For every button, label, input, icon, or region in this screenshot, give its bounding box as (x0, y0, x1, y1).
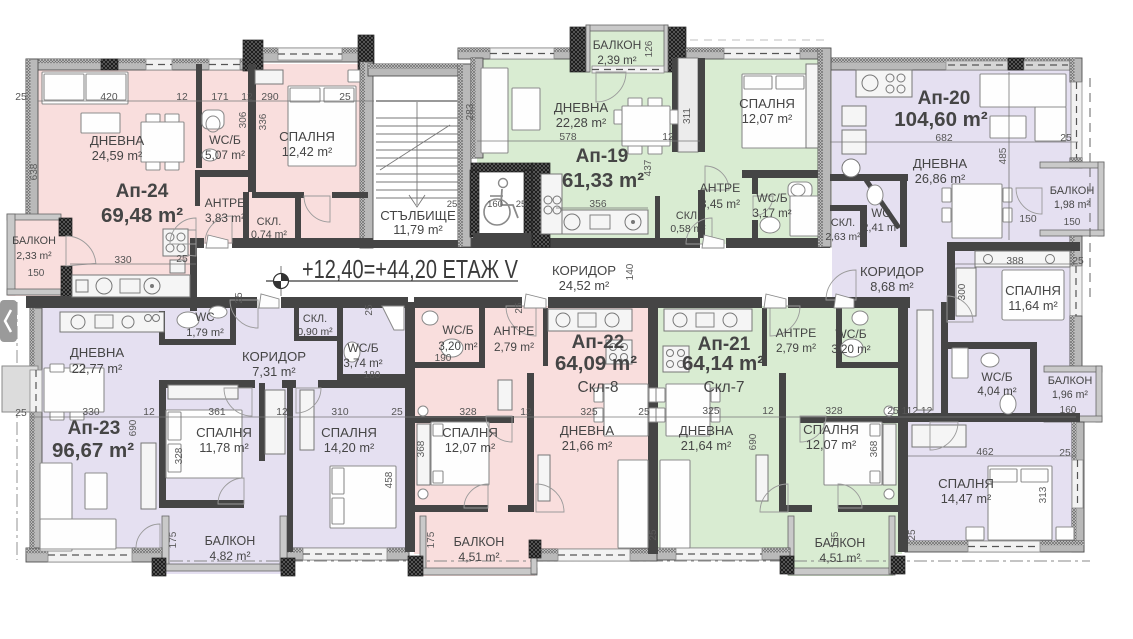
svg-text:2,33 m²: 2,33 m² (16, 251, 52, 262)
svg-text:175: 175 (426, 531, 437, 548)
svg-text:БАЛКОН: БАЛКОН (1050, 185, 1095, 197)
svg-text:12,07 m²: 12,07 m² (445, 440, 496, 455)
svg-text:11,79 m²: 11,79 m² (393, 222, 443, 237)
svg-text:336: 336 (258, 113, 269, 130)
svg-text:25: 25 (514, 302, 525, 314)
svg-text:25: 25 (176, 254, 188, 265)
svg-text:458: 458 (384, 471, 395, 488)
svg-text:4,51 m²: 4,51 m² (459, 550, 500, 564)
svg-text:325: 325 (580, 407, 597, 418)
svg-text:160: 160 (487, 199, 503, 210)
svg-text:25: 25 (907, 529, 918, 541)
svg-text:21,66 m²: 21,66 m² (562, 438, 613, 453)
svg-text:ДНЕВНА: ДНЕВНА (90, 133, 145, 148)
svg-text:2,79 m²: 2,79 m² (776, 341, 816, 355)
svg-text:БАЛКОН: БАЛКОН (593, 38, 642, 52)
svg-text:0,58 m²: 0,58 m² (670, 224, 706, 235)
svg-text:25: 25 (1072, 256, 1084, 267)
svg-text:3,83 m²: 3,83 m² (205, 211, 245, 225)
svg-text:2,79 m²: 2,79 m² (494, 340, 534, 354)
svg-text:690: 690 (748, 433, 759, 450)
svg-text:Скл-8: Скл-8 (578, 379, 619, 396)
svg-text:2,41 m²: 2,41 m² (862, 222, 900, 234)
svg-text:361: 361 (208, 407, 225, 418)
svg-text:Ап-20: Ап-20 (918, 88, 971, 109)
svg-text:3,45 m²: 3,45 m² (700, 197, 740, 211)
svg-text:СПАЛНЯ: СПАЛНЯ (803, 422, 859, 437)
svg-text:СПАЛНЯ: СПАЛНЯ (279, 129, 335, 144)
svg-text:СКЛ.: СКЛ. (257, 216, 282, 228)
svg-text:WC/Б: WC/Б (347, 341, 378, 355)
svg-text:Ап-19: Ап-19 (576, 146, 629, 167)
svg-text:WC/Б: WC/Б (981, 370, 1012, 384)
svg-text:КОРИДОР: КОРИДОР (552, 263, 616, 278)
svg-text:СПАЛНЯ: СПАЛНЯ (321, 425, 377, 440)
svg-text:64,14 m²: 64,14 m² (682, 352, 764, 375)
svg-text:ДНЕВНА: ДНЕВНА (913, 156, 968, 171)
svg-text:12,07 m²: 12,07 m² (806, 437, 857, 452)
svg-text:25: 25 (638, 407, 650, 418)
svg-text:306: 306 (238, 111, 249, 128)
svg-text:СПАЛНЯ: СПАЛНЯ (739, 96, 795, 111)
svg-text:25: 25 (447, 199, 458, 210)
svg-text:150: 150 (28, 268, 45, 279)
svg-text:4,82 m²: 4,82 m² (210, 549, 251, 563)
svg-text:25: 25 (364, 304, 375, 316)
svg-text:150: 150 (1064, 217, 1081, 228)
svg-text:69,48 m²: 69,48 m² (101, 204, 183, 227)
svg-text:АНТРЕ: АНТРЕ (700, 181, 741, 195)
svg-text:3,17 m²: 3,17 m² (752, 207, 791, 220)
svg-text:61,33 m²: 61,33 m² (562, 169, 644, 192)
svg-text:64,09 m²: 64,09 m² (555, 352, 637, 375)
svg-text:2,39 m²: 2,39 m² (597, 54, 636, 67)
svg-text:WC/Б: WC/Б (442, 323, 473, 337)
svg-text:1,98 m²: 1,98 m² (1054, 199, 1090, 211)
svg-text:690: 690 (128, 419, 139, 436)
svg-text:ДНЕВНА: ДНЕВНА (70, 345, 125, 360)
svg-text:БАЛКОН: БАЛКОН (205, 534, 256, 548)
svg-text:325: 325 (702, 406, 719, 417)
svg-text:160: 160 (1060, 405, 1077, 416)
svg-text:180: 180 (364, 370, 381, 381)
svg-text:ДНЕВНА: ДНЕВНА (554, 100, 609, 115)
svg-text:ДНЕВНА: ДНЕВНА (679, 423, 734, 438)
svg-text:330: 330 (82, 407, 99, 418)
svg-text:12,42 m²: 12,42 m² (282, 144, 333, 159)
svg-text:25: 25 (15, 408, 27, 419)
svg-text:140: 140 (625, 263, 636, 280)
svg-text:175: 175 (830, 531, 841, 548)
svg-text:12,07 m²: 12,07 m² (742, 111, 793, 126)
svg-text:12: 12 (520, 407, 532, 418)
svg-text:СКЛ.: СКЛ. (303, 313, 327, 325)
svg-text:+12,40=+44,20 ЕТАЖ V: +12,40=+44,20 ЕТАЖ V (302, 254, 518, 284)
svg-text:22,77 m²: 22,77 m² (72, 361, 123, 376)
svg-text:КОРИДОР: КОРИДОР (242, 349, 306, 364)
svg-text:СПАЛНЯ: СПАЛНЯ (442, 425, 498, 440)
svg-text:4,51 m²: 4,51 m² (820, 551, 861, 565)
svg-text:388: 388 (1006, 256, 1023, 267)
svg-text:8,68 m²: 8,68 m² (870, 279, 914, 294)
svg-text:14,47 m²: 14,47 m² (941, 491, 992, 506)
svg-text:WC/Б: WC/Б (835, 327, 866, 341)
svg-text:190: 190 (435, 353, 452, 364)
svg-text:313: 313 (1038, 486, 1049, 503)
svg-text:1,96 m²: 1,96 m² (1052, 389, 1088, 401)
svg-text:96,67 m²: 96,67 m² (52, 439, 134, 462)
svg-text:328: 328 (459, 407, 476, 418)
svg-text:24,59 m²: 24,59 m² (92, 148, 143, 163)
svg-text:АНТРЕ: АНТРЕ (776, 326, 817, 340)
svg-text:АНТРЕ: АНТРЕ (205, 196, 246, 210)
svg-text:0,90 m²: 0,90 m² (297, 327, 333, 338)
svg-text:БАЛКОН: БАЛКОН (12, 235, 56, 247)
svg-text:22,28 m²: 22,28 m² (556, 115, 607, 130)
svg-text:БАЛКОН: БАЛКОН (454, 535, 505, 549)
svg-text:Скл-7: Скл-7 (704, 379, 745, 396)
svg-text:126: 126 (644, 40, 655, 57)
svg-text:12: 12 (762, 406, 774, 417)
svg-text:4,04 m²: 4,04 m² (977, 385, 1016, 398)
svg-text:25: 25 (648, 529, 659, 541)
svg-text:21,64 m²: 21,64 m² (681, 438, 732, 453)
svg-text:368: 368 (869, 440, 880, 457)
svg-text:11,78 m²: 11,78 m² (199, 440, 249, 455)
svg-text:СКЛ.: СКЛ. (831, 217, 855, 229)
svg-text:Ап-24: Ап-24 (116, 181, 169, 202)
svg-text:Ап-22: Ап-22 (572, 332, 625, 353)
svg-text:26,86 m²: 26,86 m² (915, 171, 966, 186)
svg-text:25: 25 (15, 92, 27, 103)
svg-text:150: 150 (1019, 214, 1036, 225)
svg-text:25: 25 (391, 407, 403, 418)
svg-text:25: 25 (234, 292, 245, 304)
svg-text:WC/Б: WC/Б (209, 133, 241, 147)
svg-text:АНТРЕ: АНТРЕ (494, 324, 535, 338)
svg-text:25: 25 (887, 406, 899, 417)
svg-text:25: 25 (1059, 448, 1071, 459)
svg-text:638: 638 (29, 163, 40, 180)
svg-text:328: 328 (174, 447, 185, 464)
svg-text:1,79 m²: 1,79 m² (186, 327, 224, 339)
svg-text:Ап-23: Ап-23 (68, 418, 121, 439)
svg-text:311: 311 (682, 108, 693, 124)
svg-text:БАЛКОН: БАЛКОН (1048, 375, 1093, 387)
svg-text:5,07 m²: 5,07 m² (205, 148, 245, 162)
svg-text:0,74 m²: 0,74 m² (251, 229, 287, 241)
svg-text:3,74 m²: 3,74 m² (343, 357, 382, 370)
svg-text:300: 300 (957, 283, 968, 300)
svg-text:3,20 m²: 3,20 m² (831, 343, 870, 356)
svg-text:СПАЛНЯ: СПАЛНЯ (1005, 283, 1061, 298)
svg-text:ДНЕВНА: ДНЕВНА (560, 423, 615, 438)
svg-text:25: 25 (516, 199, 527, 210)
svg-text:WC/Б: WC/Б (756, 191, 787, 205)
svg-text:310: 310 (331, 407, 348, 418)
svg-text:24,52 m²: 24,52 m² (559, 278, 610, 293)
svg-text:СКЛ.: СКЛ. (676, 210, 700, 222)
svg-text:328: 328 (825, 406, 842, 417)
svg-text:11,64 m²: 11,64 m² (1008, 298, 1058, 313)
svg-text:2,63 m²: 2,63 m² (825, 232, 861, 243)
svg-text:КОРИДОР: КОРИДОР (860, 264, 924, 279)
svg-text:485: 485 (998, 147, 1009, 164)
svg-text:СПАЛНЯ: СПАЛНЯ (938, 476, 994, 491)
svg-text:12: 12 (143, 407, 155, 418)
svg-text:283: 283 (465, 103, 476, 120)
svg-text:7,31 m²: 7,31 m² (252, 364, 296, 379)
svg-text:СПАЛНЯ: СПАЛНЯ (196, 425, 252, 440)
svg-text:368: 368 (416, 440, 427, 457)
svg-text:104,60 m²: 104,60 m² (894, 108, 988, 131)
svg-text:437: 437 (643, 159, 654, 176)
svg-text:175: 175 (168, 531, 179, 548)
svg-text:СТЪЛБИЩЕ: СТЪЛБИЩЕ (380, 208, 456, 223)
svg-text:3,20 m²: 3,20 m² (438, 340, 477, 353)
svg-text:WC: WC (195, 312, 214, 324)
svg-text:112 12: 112 12 (902, 406, 933, 417)
svg-text:WC: WC (871, 208, 890, 220)
svg-text:14,20 m²: 14,20 m² (324, 440, 375, 455)
svg-text:12: 12 (276, 407, 288, 418)
